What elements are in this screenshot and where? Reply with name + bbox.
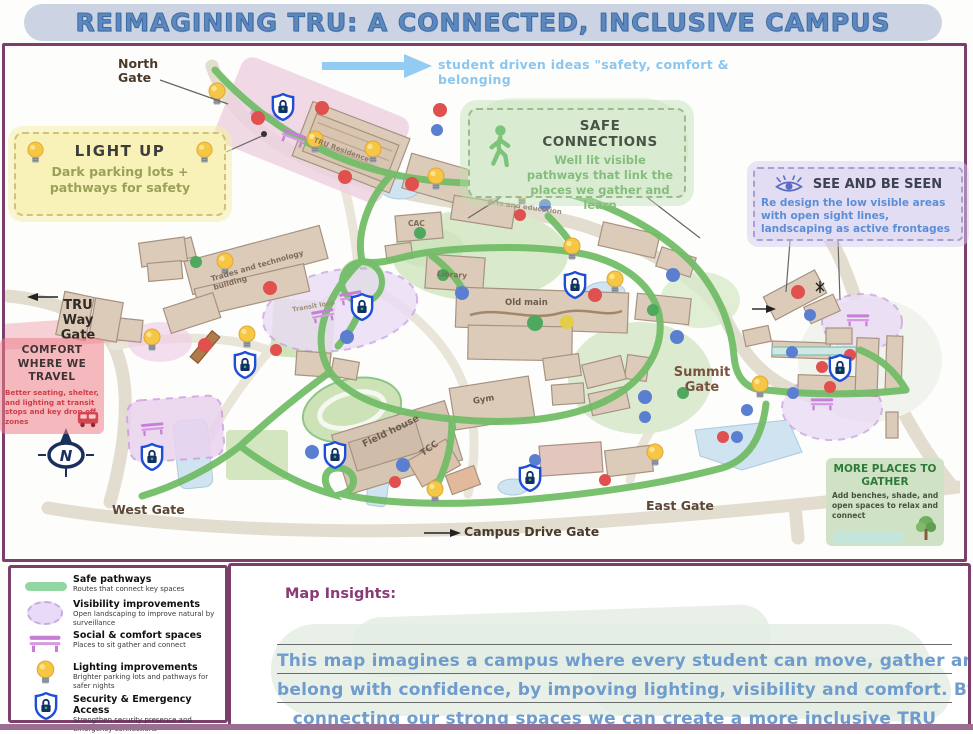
bottom-border-strip bbox=[0, 724, 973, 730]
insight-line: This map imagines a campus where every s… bbox=[277, 645, 952, 674]
bench-icon bbox=[27, 634, 63, 653]
compass-rose: N bbox=[38, 428, 94, 477]
legend-desc: Brighter parking lots and pathways for s… bbox=[73, 673, 221, 691]
legend-desc: Places to sit gather and connect bbox=[73, 641, 221, 650]
callout-see-and-be-seen: SEE AND BE SEEN Re design the low visibl… bbox=[753, 167, 963, 241]
teal-swatch bbox=[834, 531, 904, 544]
insight-line: belong with confidence, by impoving ligh… bbox=[277, 674, 952, 703]
lightbulb-icon bbox=[35, 660, 56, 687]
header-arrow-icon bbox=[322, 54, 432, 78]
legend-title: Safe pathways bbox=[73, 574, 221, 585]
building-label-cac: CAC bbox=[408, 219, 425, 228]
legend-item: Social & comfort spaces Places to sit ga… bbox=[73, 630, 221, 650]
shield-lock-icon bbox=[520, 465, 540, 491]
visibility-blob-icon bbox=[27, 601, 63, 625]
gate-label-campus-drive: Campus Drive Gate bbox=[464, 525, 599, 539]
shield-lock-icon bbox=[34, 692, 58, 720]
gate-label-summit: Summit Gate bbox=[660, 366, 744, 396]
legend-title: Visibility improvements bbox=[73, 599, 221, 610]
legend-item: Lighting improvements Brighter parking l… bbox=[73, 662, 221, 691]
callout-light-up: LIGHT UP Dark parking lots + pathways fo… bbox=[14, 132, 226, 216]
callout-comfort-where-we-travel: COMFORT WHERE WE TRAVEL Better seating, … bbox=[0, 338, 104, 434]
compass-n-label: N bbox=[60, 447, 73, 465]
gate-label-north: North Gate bbox=[118, 57, 174, 86]
ruled-line bbox=[277, 616, 952, 645]
bus-icon bbox=[77, 410, 99, 429]
poster-title: REIMAGINING TRU: A CONNECTED, INCLUSIVE … bbox=[76, 8, 891, 37]
legend-item: Visibility improvements Open landscaping… bbox=[73, 599, 221, 628]
building-label-old-main: Old main bbox=[505, 298, 548, 308]
legend-panel: Safe pathways Routes that connect key sp… bbox=[8, 565, 228, 723]
gate-label-west: West Gate bbox=[112, 503, 185, 517]
shield-lock-icon bbox=[830, 355, 850, 381]
lightbulb-icon bbox=[195, 141, 214, 166]
callout-see-and-be-seen-title: SEE AND BE SEEN bbox=[813, 177, 942, 192]
safe-pathway-swatch bbox=[25, 582, 67, 591]
legend-desc: Open landscaping to improve natural by s… bbox=[73, 610, 221, 628]
shield-lock-icon bbox=[325, 442, 345, 468]
legend-title: Security & Emergency Access bbox=[73, 694, 221, 716]
poster-title-bar: REIMAGINING TRU: A CONNECTED, INCLUSIVE … bbox=[24, 4, 942, 41]
legend-item: Safe pathways Routes that connect key sp… bbox=[73, 574, 221, 594]
legend-title: Lighting improvements bbox=[73, 662, 221, 673]
tree-icon bbox=[914, 514, 938, 542]
shield-lock-icon bbox=[565, 272, 585, 298]
shield-lock-icon bbox=[273, 94, 293, 120]
legend-desc: Routes that connect key spaces bbox=[73, 585, 221, 594]
walking-person-icon bbox=[482, 124, 516, 172]
shield-lock-icon bbox=[235, 352, 255, 378]
callout-safe-connections: SAFE CONNECTIONS Well lit visible pathwa… bbox=[468, 108, 686, 198]
callout-comfort-title: COMFORT WHERE WE TRAVEL bbox=[0, 344, 104, 385]
student-ideas-note: student driven ideas "safety, comfort & … bbox=[438, 57, 778, 87]
activity-dot-yellow bbox=[560, 315, 574, 329]
callout-safe-connections-title: SAFE CONNECTIONS bbox=[522, 118, 678, 150]
legend-title: Social & comfort spaces bbox=[73, 630, 221, 641]
lightbulb-icon bbox=[427, 481, 443, 503]
callout-more-places-to-gather: MORE PLACES TO GATHER Add benches, shade… bbox=[826, 458, 944, 546]
map-insights-panel: Map Insights: This map imagines a campus… bbox=[228, 563, 971, 727]
callout-see-and-be-seen-body: Re design the low visible areas with ope… bbox=[761, 197, 955, 236]
callout-safe-connections-body: Well lit visible pathways that link the … bbox=[522, 153, 678, 213]
shield-lock-icon bbox=[142, 444, 162, 470]
gate-label-east: East Gate bbox=[646, 499, 714, 513]
callout-light-up-title: LIGHT UP bbox=[16, 142, 224, 160]
callout-light-up-body: Dark parking lots + pathways for safety bbox=[16, 164, 224, 197]
callout-more-places-title: MORE PLACES TO GATHER bbox=[826, 463, 944, 489]
lightbulb-icon bbox=[752, 376, 768, 398]
map-insights-heading: Map Insights: bbox=[285, 586, 396, 602]
eye-icon bbox=[774, 175, 804, 195]
insight-lines: This map imagines a campus where every s… bbox=[277, 616, 952, 727]
shield-lock-icon bbox=[352, 294, 372, 320]
lightbulb-icon bbox=[26, 141, 45, 166]
